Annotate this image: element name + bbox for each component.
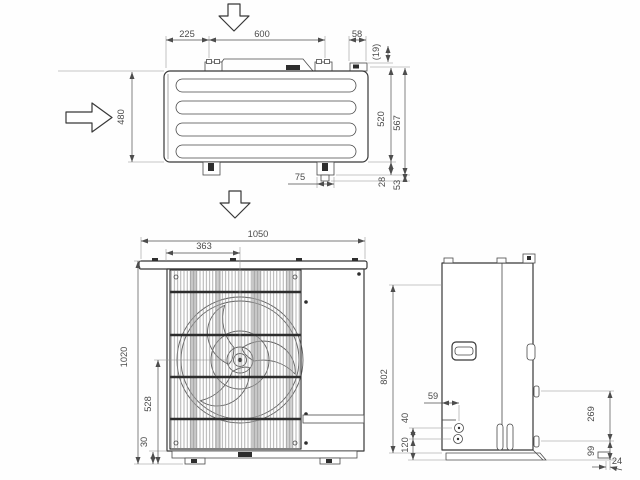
top-panel-bolt	[296, 258, 302, 261]
rubber-pad	[286, 65, 300, 70]
top-tab	[497, 258, 506, 263]
dim-side-base-lip: 24	[612, 456, 622, 466]
dim-side-pipe-base-height: 120	[400, 437, 410, 453]
bolt	[325, 60, 330, 64]
side-view: 802 59 40 120 269 99 24	[379, 254, 622, 470]
dim-front-fan-center-y: 528	[143, 396, 153, 412]
pipe-center-mark	[457, 438, 459, 440]
bolt	[215, 60, 220, 64]
dim-side-hanger-base-offset: 99	[586, 446, 596, 456]
airflow-down-arrow-top-icon	[219, 4, 249, 31]
dim-front-base-height: 30	[139, 437, 149, 447]
mount-slot	[497, 424, 503, 450]
drawing-canvas: 225 600 58 (19) 480 520 567 28 53 75	[0, 0, 640, 480]
panel-screw	[304, 300, 308, 304]
base-rail-front	[172, 451, 357, 458]
dim-front-overall-height: 1020	[119, 347, 129, 368]
panel-screw	[357, 272, 361, 276]
bolt	[207, 60, 212, 64]
top-view: 225 600 58 (19) 480 520 567 28 53 75	[58, 29, 410, 190]
dim-top-foot-pitch-left: 225	[179, 29, 195, 39]
hanger-slot-upper	[534, 386, 539, 397]
unit-body-top	[164, 71, 368, 162]
dim-side-pipe-spacing: 40	[400, 413, 410, 423]
dimension-drawing: 225 600 58 (19) 480 520 567 28 53 75	[0, 0, 640, 480]
dim-side-rear-panel-height: 802	[379, 369, 389, 385]
top-panel	[139, 261, 367, 269]
dim-top-overall-depth: 567	[392, 115, 402, 131]
foot-right-lug	[321, 175, 329, 181]
side-bracket-mark	[353, 65, 359, 69]
dim-top-foot-offset-rear: 28	[377, 177, 387, 187]
dim-side-pipe-offset: 59	[428, 391, 438, 401]
grille-dense-band	[286, 271, 293, 448]
front-foot-left-bolt	[191, 459, 197, 463]
dim-top-foot-slot-width: 75	[295, 172, 305, 182]
dim-front-overall-width: 1050	[248, 229, 269, 239]
top-panel-bolt	[230, 258, 236, 261]
top-tab	[444, 258, 453, 263]
foot-right-bolt	[322, 163, 328, 171]
dim-front-fan-center-x: 363	[196, 241, 212, 251]
grille-dense-band	[215, 271, 221, 448]
grille-dense-band	[190, 271, 197, 448]
foot-left-bolt	[208, 163, 214, 171]
front-foot-right-bolt	[326, 459, 332, 463]
dim-top-bracket-width: 58	[352, 29, 362, 39]
mount-slot	[507, 424, 513, 450]
pipe-center-mark	[458, 427, 460, 429]
front-view: 1050 363 1020 528 30	[119, 229, 367, 464]
panel-screw	[304, 441, 308, 445]
rear-handle	[527, 344, 535, 360]
top-panel-bolt	[352, 258, 358, 261]
grille-dense-band	[252, 271, 261, 448]
airflow-right-arrow-icon	[66, 103, 112, 132]
top-bracket-bolt	[527, 256, 531, 260]
top-panel-bolt	[152, 258, 158, 261]
bolt	[317, 60, 322, 64]
dim-top-bracket-offset: (19)	[371, 44, 381, 61]
panel-seam	[303, 415, 364, 423]
unit-body-side	[442, 263, 533, 450]
base-rail-side	[446, 453, 546, 460]
anchor-detail	[598, 452, 610, 458]
dim-top-foot-pitch-center: 600	[254, 29, 270, 39]
dim-top-body-depth: 480	[116, 109, 126, 125]
hanger-slot-lower	[534, 436, 539, 447]
dim-top-depth-to-foot: 520	[376, 111, 386, 127]
dim-side-hanger-pitch: 269	[586, 406, 596, 422]
airflow-down-arrow-middle-icon	[220, 191, 250, 218]
dim-top-foot-overall-rear: 53	[392, 180, 402, 190]
drain-fitting	[238, 452, 252, 457]
